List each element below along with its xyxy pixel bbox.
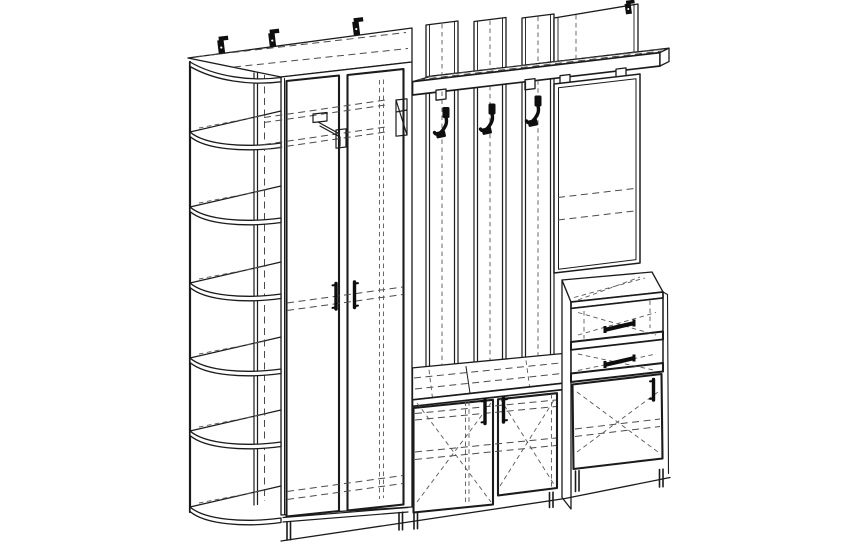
corner-shelf [190,410,281,449]
furniture-line-drawing [0,0,856,548]
corner-unit-rear-edges [254,73,265,506]
bracket-icon [217,36,230,54]
coat-hook-icon[interactable] [527,96,542,128]
corner-shelf [190,337,281,376]
wardrobe-front-details [264,69,408,540]
mirror [554,74,640,273]
bracket-icon [352,17,365,35]
right-cabinet-stack [562,272,669,509]
bench-right-door[interactable] [498,393,557,495]
corner-shelf-unit [190,62,281,525]
rack-slat-top [426,21,458,77]
corner-shelf [190,262,281,301]
corner-shelf [190,186,281,225]
rack-slat-top [522,14,554,66]
wardrobe-left-door[interactable] [287,76,340,517]
technical-drawing-page [0,0,856,548]
mirror-frame [554,74,640,273]
corner-shelf-bottom [190,486,281,525]
coat-hook-icon[interactable] [481,104,496,136]
stack-left-panel [562,280,571,509]
rack-slat-top [474,18,506,72]
bracket-icon [268,29,281,47]
